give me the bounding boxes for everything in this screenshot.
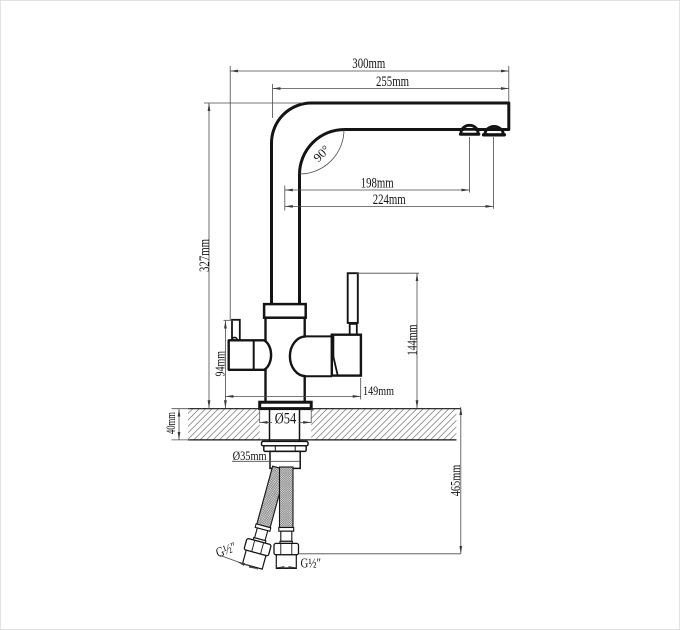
svg-text:Ø54: Ø54 xyxy=(275,411,297,428)
svg-text:224mm: 224mm xyxy=(373,192,407,208)
svg-text:255mm: 255mm xyxy=(376,74,410,90)
svg-text:465mm: 465mm xyxy=(449,465,464,497)
svg-text:Ø35mm: Ø35mm xyxy=(233,448,267,463)
svg-text:198mm: 198mm xyxy=(361,176,395,192)
svg-text:144mm: 144mm xyxy=(405,324,420,355)
svg-text:300mm: 300mm xyxy=(352,56,386,72)
svg-text:149mm: 149mm xyxy=(363,384,394,398)
svg-text:G½″: G½″ xyxy=(301,557,322,572)
svg-text:40mm: 40mm xyxy=(164,412,178,434)
svg-text:94mm: 94mm xyxy=(213,351,228,377)
svg-text:327mm: 327mm xyxy=(197,238,213,272)
